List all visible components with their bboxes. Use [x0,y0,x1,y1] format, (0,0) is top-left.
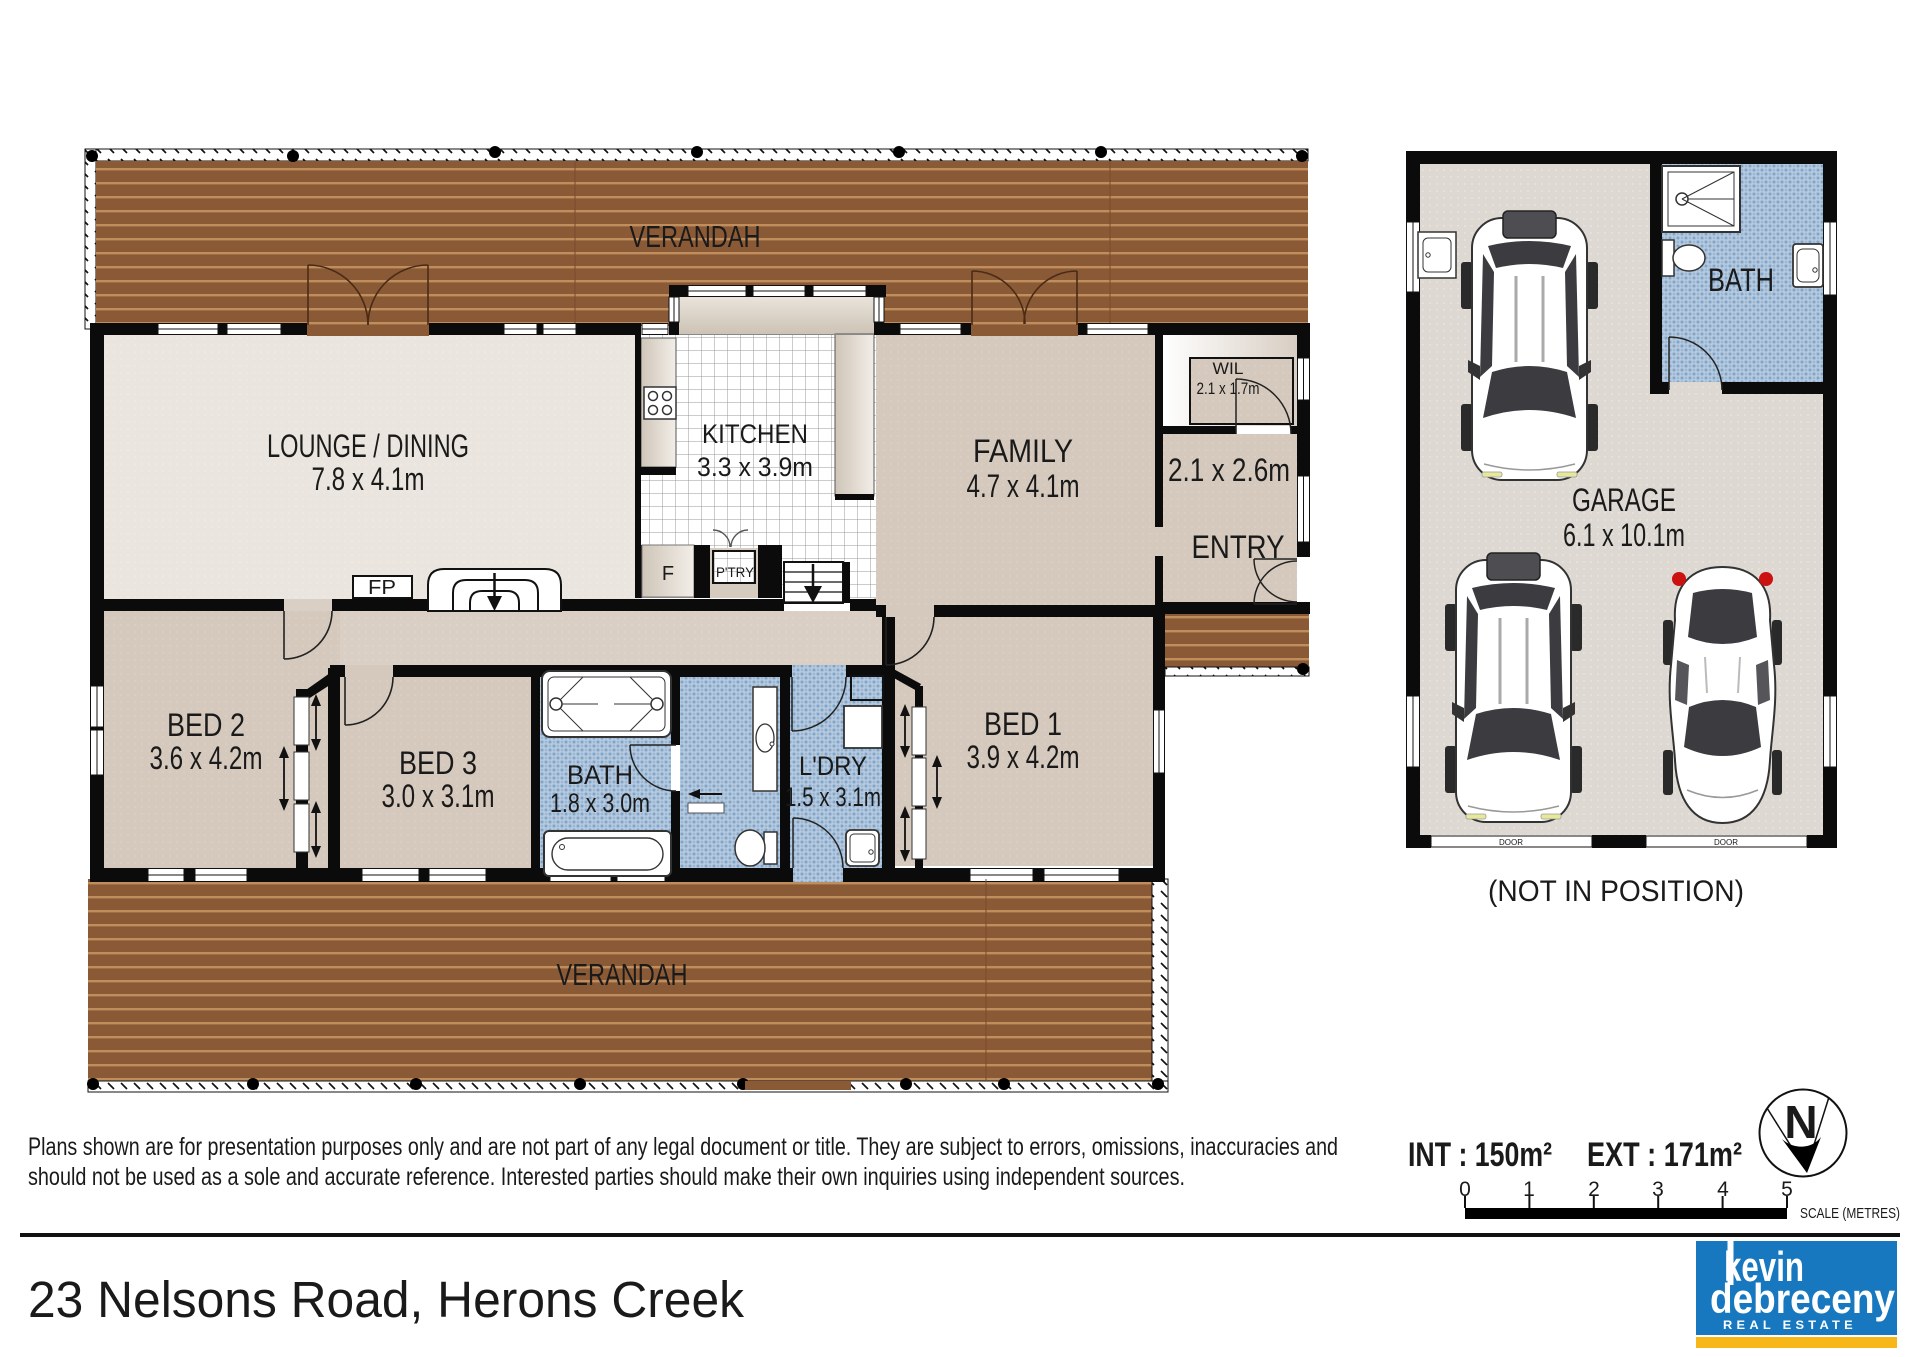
svg-text:BED 3: BED 3 [399,745,477,781]
svg-text:F: F [662,563,674,585]
svg-text:2.1 x 2.6m: 2.1 x 2.6m [1168,452,1290,488]
svg-text:3.9 x 4.2m: 3.9 x 4.2m [967,739,1080,775]
svg-text:7.8 x 4.1m: 7.8 x 4.1m [312,461,425,497]
svg-text:LOUNGE / DINING: LOUNGE / DINING [267,428,469,464]
svg-text:Plans shown are for presentati: Plans shown are for presentation purpose… [28,1133,1338,1161]
svg-text:debreceny: debreceny [1710,1275,1896,1322]
svg-text:3.3 x 3.9m: 3.3 x 3.9m [697,452,813,482]
svg-text:SCALE (METRES): SCALE (METRES) [1800,1206,1900,1222]
svg-text:should not be used as a sole a: should not be used as a sole and accurat… [28,1163,1185,1191]
svg-text:P'TRY: P'TRY [716,564,755,580]
svg-text:3.6 x 4.2m: 3.6 x 4.2m [150,740,263,776]
svg-text:3.0 x 3.1m: 3.0 x 3.1m [382,778,495,814]
svg-text:2.1 x 1.7m: 2.1 x 1.7m [1197,379,1260,398]
svg-text:KITCHEN: KITCHEN [702,419,808,449]
svg-text:BATH: BATH [1708,262,1774,298]
svg-text:4.7 x 4.1m: 4.7 x 4.1m [967,468,1080,504]
svg-text:N: N [1784,1096,1817,1148]
svg-text:DOOR: DOOR [1499,838,1523,847]
svg-text:FAMILY: FAMILY [973,433,1073,469]
svg-text:BED 1: BED 1 [984,706,1062,742]
svg-text:L'DRY: L'DRY [799,751,867,781]
svg-text:REAL ESTATE: REAL ESTATE [1723,1318,1857,1332]
svg-text:1.8 x 3.0m: 1.8 x 3.0m [550,788,650,818]
svg-text:2: 2 [1588,1178,1600,1201]
svg-text:ENTRY: ENTRY [1192,529,1285,565]
svg-text:5: 5 [1781,1178,1793,1201]
svg-text:23 Nelsons Road, Herons Creek: 23 Nelsons Road, Herons Creek [28,1271,744,1328]
svg-text:3: 3 [1652,1178,1664,1201]
svg-text:INT : 150m²: INT : 150m² [1408,1136,1552,1174]
svg-text:WIL: WIL [1213,359,1244,378]
svg-text:VERANDAH: VERANDAH [557,957,688,992]
svg-text:BED 2: BED 2 [167,707,245,743]
svg-text:FP: FP [368,577,396,599]
svg-text:DOOR: DOOR [1714,838,1738,847]
svg-text:1.5 x 3.1m: 1.5 x 3.1m [785,782,881,812]
svg-text:(NOT IN POSITION): (NOT IN POSITION) [1488,875,1744,908]
svg-text:0: 0 [1459,1178,1471,1201]
svg-text:6.1 x 10.1m: 6.1 x 10.1m [1563,517,1685,553]
svg-text:GARAGE: GARAGE [1572,482,1676,518]
svg-text:BATH: BATH [567,760,633,790]
svg-text:EXT : 171m²: EXT : 171m² [1587,1136,1742,1174]
svg-text:1: 1 [1523,1178,1535,1201]
svg-text:4: 4 [1717,1178,1729,1201]
svg-text:VERANDAH: VERANDAH [630,219,761,254]
